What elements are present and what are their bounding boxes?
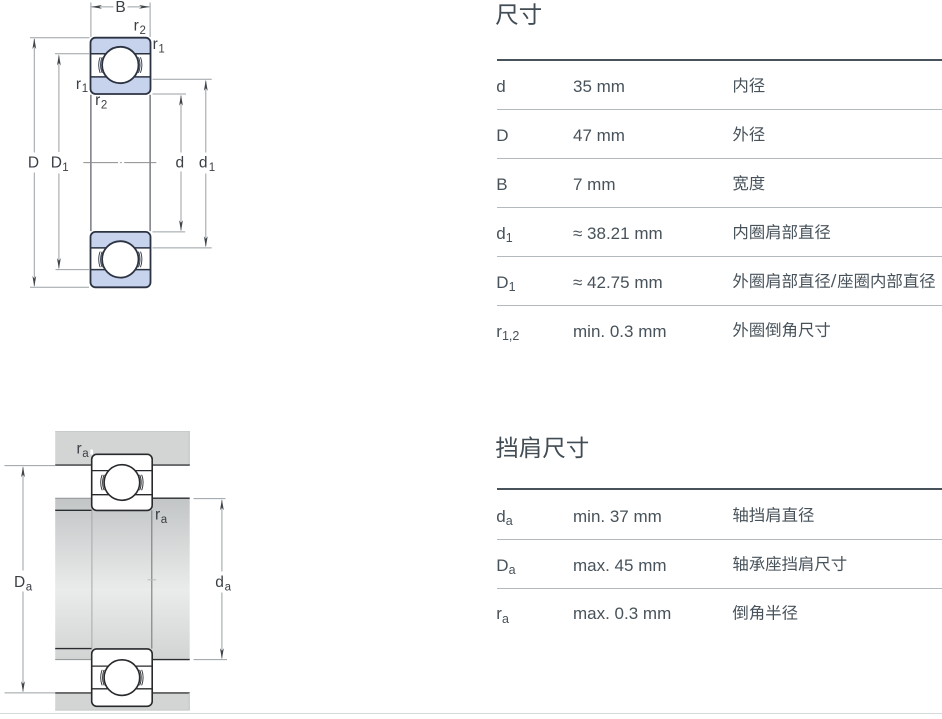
svg-text:d: d — [199, 155, 208, 172]
svg-text:a: a — [26, 581, 33, 593]
svg-text:r: r — [77, 441, 82, 458]
svg-text:a: a — [225, 581, 232, 593]
svg-text:d: d — [175, 155, 184, 172]
svg-text:r: r — [95, 92, 100, 109]
svg-text:r: r — [155, 507, 160, 524]
svg-text:d: d — [215, 574, 224, 591]
svg-text:a: a — [161, 514, 168, 526]
svg-text:r: r — [76, 76, 81, 93]
svg-text:a: a — [82, 448, 89, 460]
svg-text:2: 2 — [140, 25, 146, 37]
svg-text:1: 1 — [158, 43, 164, 55]
svg-text:1: 1 — [209, 162, 215, 174]
svg-text:D: D — [51, 155, 62, 172]
svg-text:1: 1 — [82, 83, 88, 95]
svg-text:1: 1 — [62, 162, 68, 174]
svg-text:B: B — [115, 0, 125, 16]
svg-text:2: 2 — [101, 100, 107, 112]
svg-text:r: r — [153, 36, 158, 53]
svg-text:D: D — [28, 155, 39, 172]
svg-text:D: D — [14, 574, 25, 591]
svg-text:r: r — [134, 17, 139, 34]
